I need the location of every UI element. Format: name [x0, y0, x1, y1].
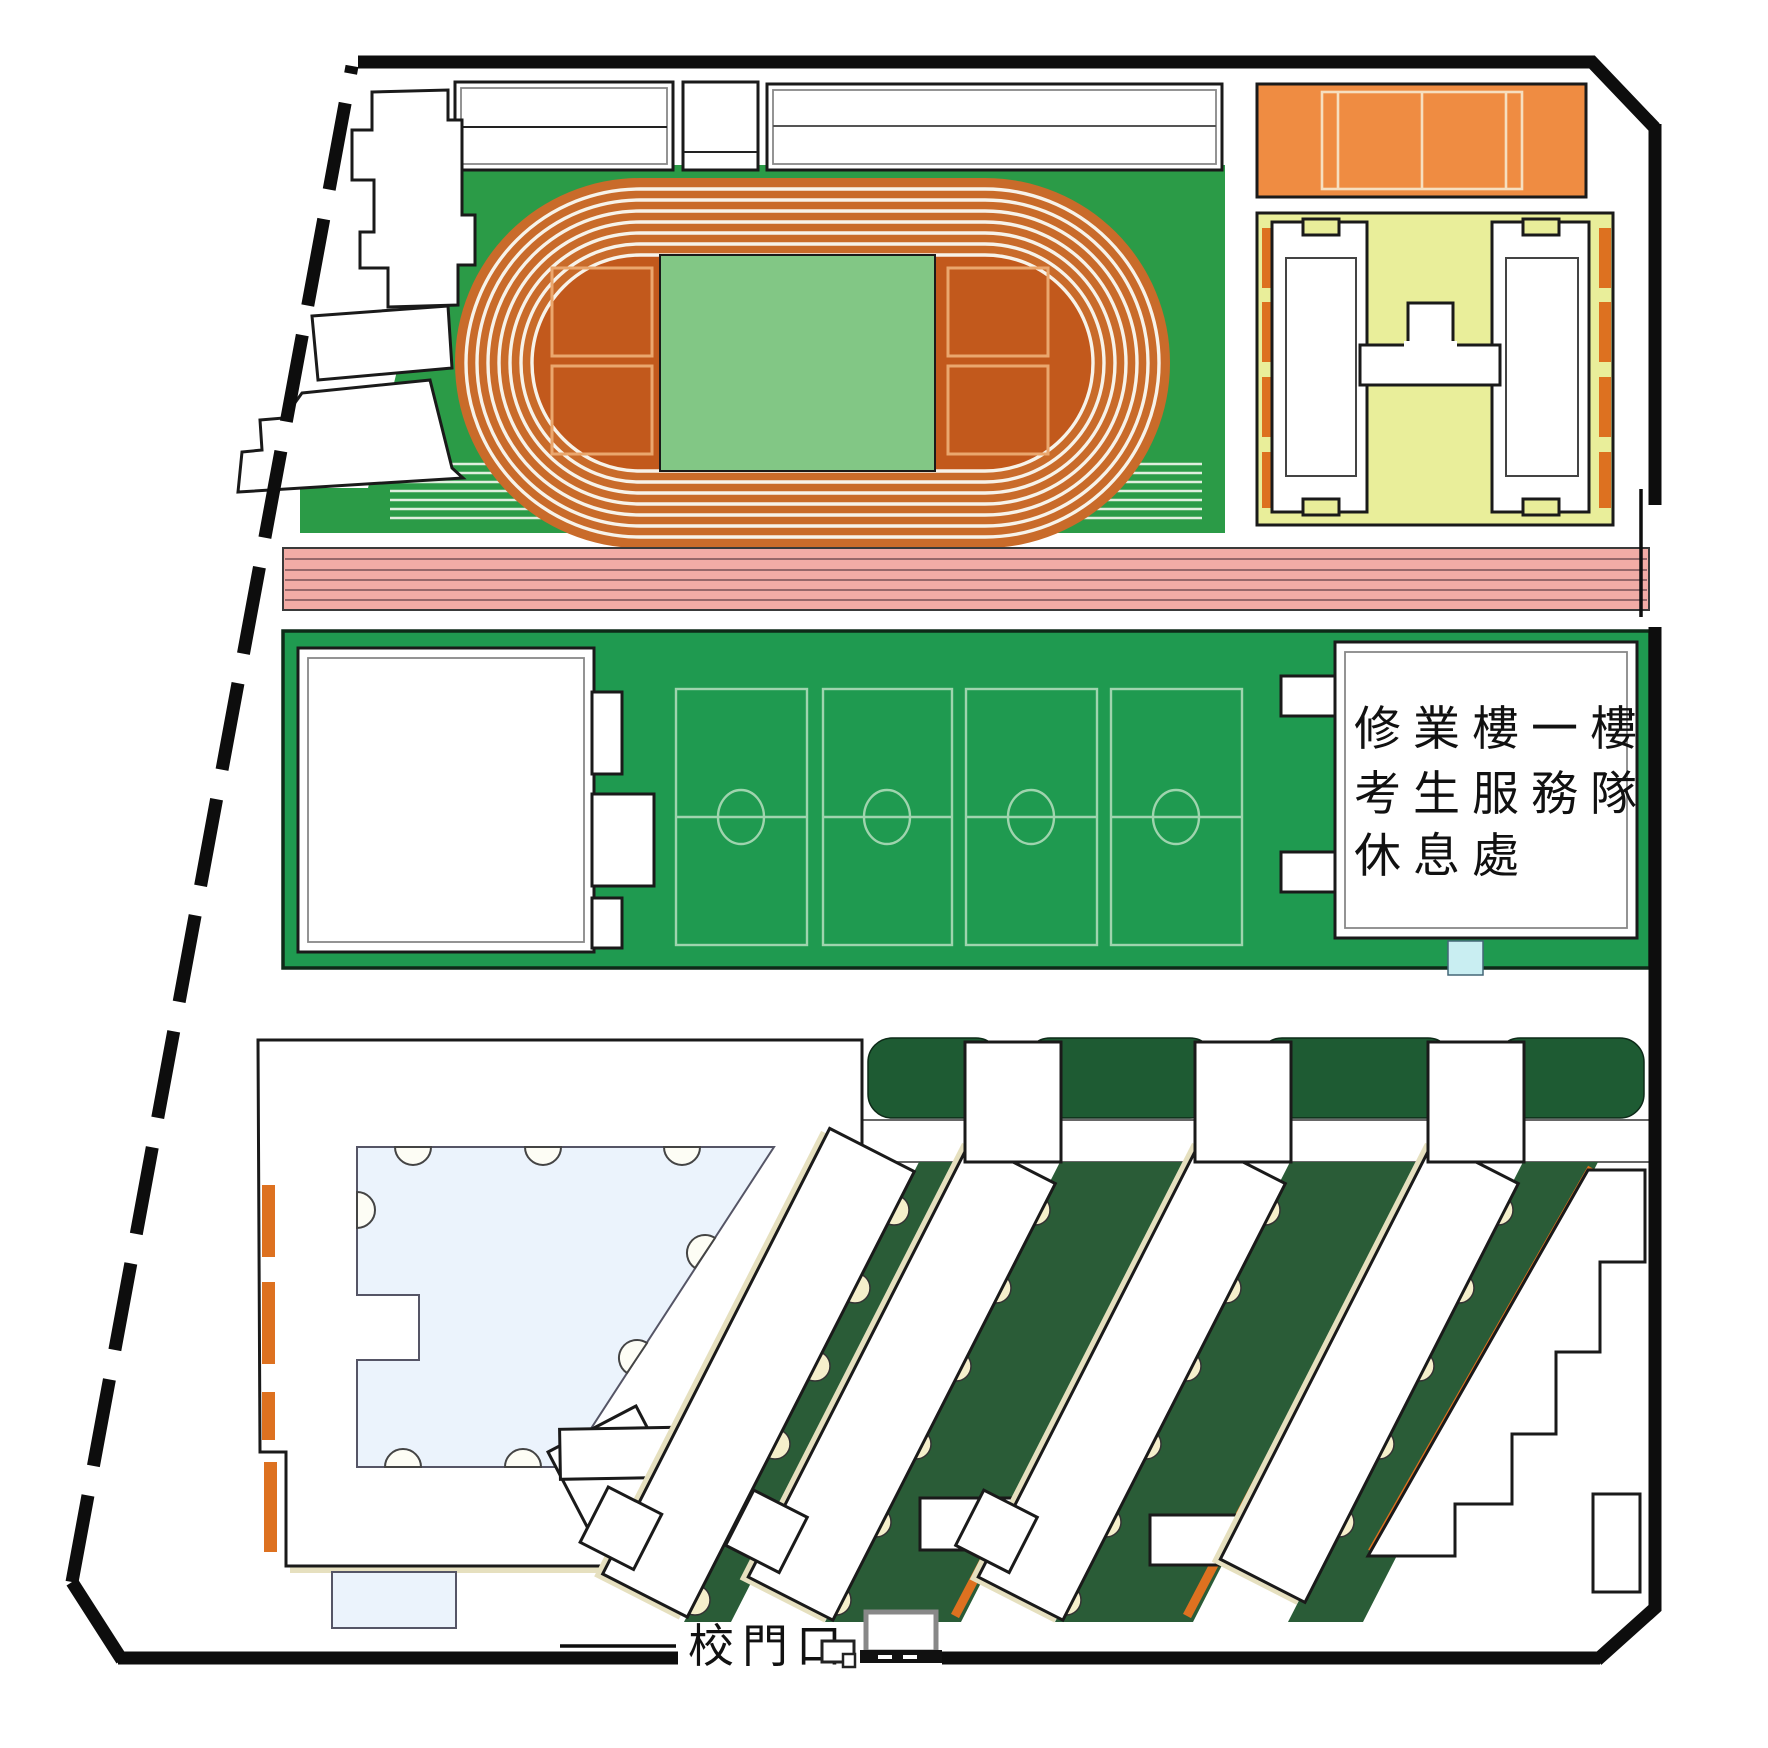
rest-area-label-line2: 考生服務隊	[1354, 769, 1649, 821]
dorm-west-courtyard	[1286, 258, 1356, 476]
grandstand-buildings	[455, 82, 1222, 170]
dorm-east-courtyard	[1506, 258, 1578, 476]
south-porch	[332, 1572, 456, 1628]
rest-area-building: 修業樓一樓 考生服務隊 休息處	[1281, 642, 1649, 975]
campus-map-page: 修業樓一樓 考生服務隊 休息處	[0, 0, 1768, 1748]
northeast-dorm-block	[1257, 213, 1613, 525]
stub-3	[1428, 1042, 1524, 1162]
south-campus	[258, 1038, 1652, 1628]
boundary-west-chamfer	[72, 1582, 122, 1660]
gate-booth-icon	[822, 1641, 855, 1667]
dorm-joint	[1404, 341, 1457, 351]
infield-center-green	[660, 255, 935, 471]
west-building-cross	[352, 90, 475, 307]
stub-2	[1195, 1042, 1291, 1162]
west-buildings	[238, 90, 475, 492]
gate-monitor-icon	[860, 1612, 942, 1663]
northeast-court	[1257, 84, 1586, 197]
rest-area-label-line3: 休息處	[1354, 831, 1531, 883]
rest-area-porch	[1448, 941, 1483, 975]
dorm-connector-tab	[1408, 303, 1453, 347]
gate-area: 校門口	[688, 1612, 942, 1672]
campus-map: 修業樓一樓 考生服務隊 休息處	[0, 0, 1768, 1748]
west-building-small	[312, 306, 452, 380]
small-east-building	[1593, 1494, 1640, 1592]
middle-courts-section: 修業樓一樓 考生服務隊 休息處	[283, 631, 1650, 975]
sprint-lanes-strip	[283, 548, 1649, 610]
stub-1	[965, 1042, 1061, 1162]
grandstand-middle	[683, 82, 758, 170]
gym-building	[298, 648, 654, 952]
rest-area-label-line1: 修業樓一樓	[1354, 704, 1649, 756]
